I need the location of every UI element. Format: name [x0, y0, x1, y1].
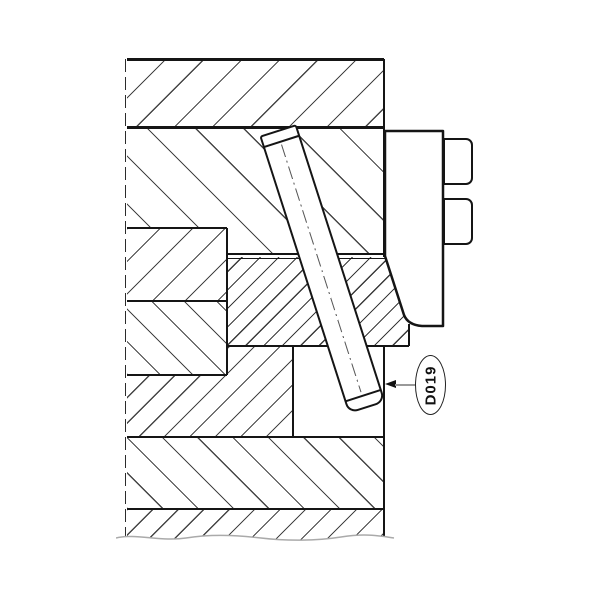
side-clamp-body [380, 125, 480, 335]
insert-right-edge [226, 228, 228, 375]
pocket-floor-line [127, 436, 384, 438]
leader-line [395, 384, 417, 385]
pocket-left-wall [292, 346, 294, 437]
technical-drawing-canvas: D019 [0, 0, 600, 600]
insert-mid-line [127, 300, 227, 302]
break-wave-line [116, 527, 398, 551]
wear-plate-bottom-line [227, 345, 409, 347]
pin-bottom-chamfer-line [345, 389, 381, 402]
leader-arrowhead-icon [385, 380, 396, 388]
callout-label: D019 [422, 365, 439, 405]
plate-boundary-1 [127, 126, 384, 129]
top-plate-hatch [127, 59, 384, 127]
insert-block-upper-hatch [127, 228, 227, 301]
callout-balloon[interactable]: D019 [415, 355, 446, 415]
insert-bottom-line [127, 374, 227, 376]
base-plate-hatch [127, 437, 384, 509]
insert-top-line [127, 227, 227, 229]
insert-block-lower-hatch [127, 301, 227, 375]
pocket-right-wall [383, 346, 385, 538]
base-plate-bottom-line [127, 508, 384, 510]
left-break-dashed-line [125, 59, 126, 538]
top-edge-line [127, 58, 384, 61]
